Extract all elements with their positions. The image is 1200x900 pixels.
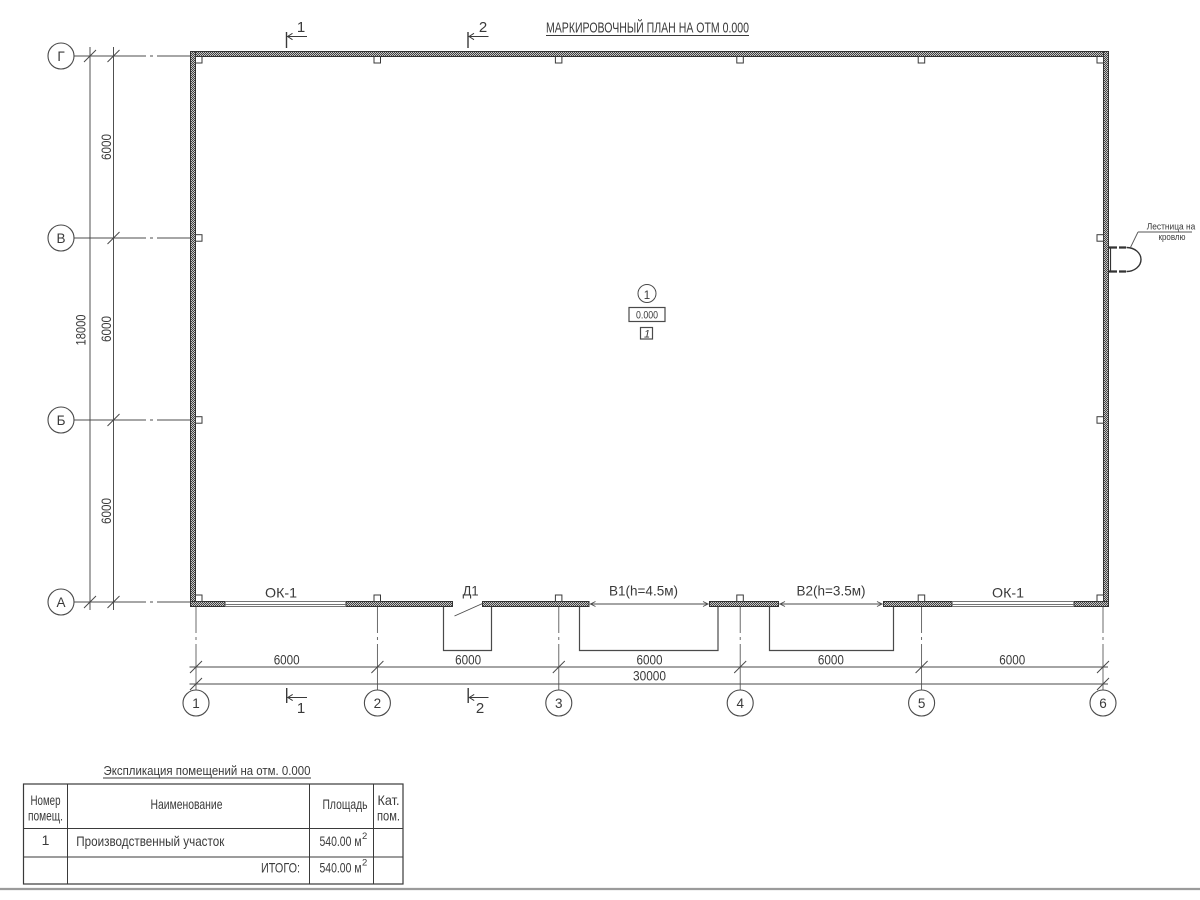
svg-text:ОК-1: ОК-1 — [265, 585, 297, 601]
svg-text:6000: 6000 — [99, 134, 114, 160]
svg-text:2: 2 — [479, 19, 487, 36]
svg-text:Д1: Д1 — [463, 583, 479, 599]
svg-text:6000: 6000 — [455, 653, 481, 668]
svg-text:Лестница на: Лестница на — [1147, 221, 1196, 231]
svg-text:0.000: 0.000 — [636, 309, 658, 321]
svg-text:МАРКИРОВОЧНЫЙ ПЛАН НА ОТМ 0.00: МАРКИРОВОЧНЫЙ ПЛАН НА ОТМ 0.000 — [546, 19, 749, 37]
svg-text:1: 1 — [644, 290, 650, 302]
svg-text:30000: 30000 — [633, 669, 666, 684]
svg-text:1: 1 — [644, 328, 650, 340]
svg-text:Экспликация помещений на отм.: Экспликация помещений на отм. 0.000 — [104, 763, 311, 778]
svg-text:Площадь: Площадь — [323, 796, 368, 812]
svg-text:2: 2 — [362, 858, 367, 869]
svg-text:3: 3 — [555, 696, 563, 711]
svg-text:Номер: Номер — [31, 792, 61, 808]
svg-text:пом.: пом. — [377, 808, 400, 824]
svg-text:4: 4 — [736, 696, 744, 711]
svg-text:1: 1 — [192, 696, 200, 711]
svg-text:Б: Б — [57, 413, 66, 428]
svg-text:6000: 6000 — [818, 653, 844, 668]
svg-text:6000: 6000 — [99, 316, 114, 342]
svg-text:1: 1 — [297, 700, 305, 717]
svg-text:помещ.: помещ. — [28, 808, 63, 824]
svg-text:6000: 6000 — [274, 653, 300, 668]
svg-text:В2(h=3.5м): В2(h=3.5м) — [797, 583, 866, 599]
svg-text:Кат.: Кат. — [378, 792, 400, 808]
svg-text:В: В — [56, 231, 65, 246]
svg-text:Г: Г — [57, 49, 65, 64]
svg-text:2: 2 — [374, 696, 382, 711]
svg-text:6000: 6000 — [999, 653, 1025, 668]
svg-text:В1(h=4.5м): В1(h=4.5м) — [609, 583, 678, 599]
svg-text:6000: 6000 — [637, 653, 663, 668]
svg-text:540.00 м: 540.00 м — [320, 833, 362, 849]
svg-text:2: 2 — [476, 700, 484, 717]
svg-text:540.00 м: 540.00 м — [320, 859, 362, 875]
svg-text:1: 1 — [297, 19, 305, 36]
svg-text:ОК-1: ОК-1 — [992, 585, 1024, 601]
svg-text:ИТОГО:: ИТОГО: — [261, 859, 300, 875]
svg-text:кровлю: кровлю — [1159, 232, 1186, 242]
svg-text:5: 5 — [918, 696, 926, 711]
svg-text:6000: 6000 — [99, 498, 114, 524]
svg-text:Наименование: Наименование — [151, 796, 223, 812]
svg-text:Производственный участок: Производственный участок — [76, 833, 225, 849]
svg-text:А: А — [56, 595, 65, 610]
svg-text:18000: 18000 — [74, 315, 89, 346]
svg-text:6: 6 — [1099, 696, 1107, 711]
svg-text:2: 2 — [362, 831, 367, 842]
svg-text:1: 1 — [42, 832, 50, 848]
